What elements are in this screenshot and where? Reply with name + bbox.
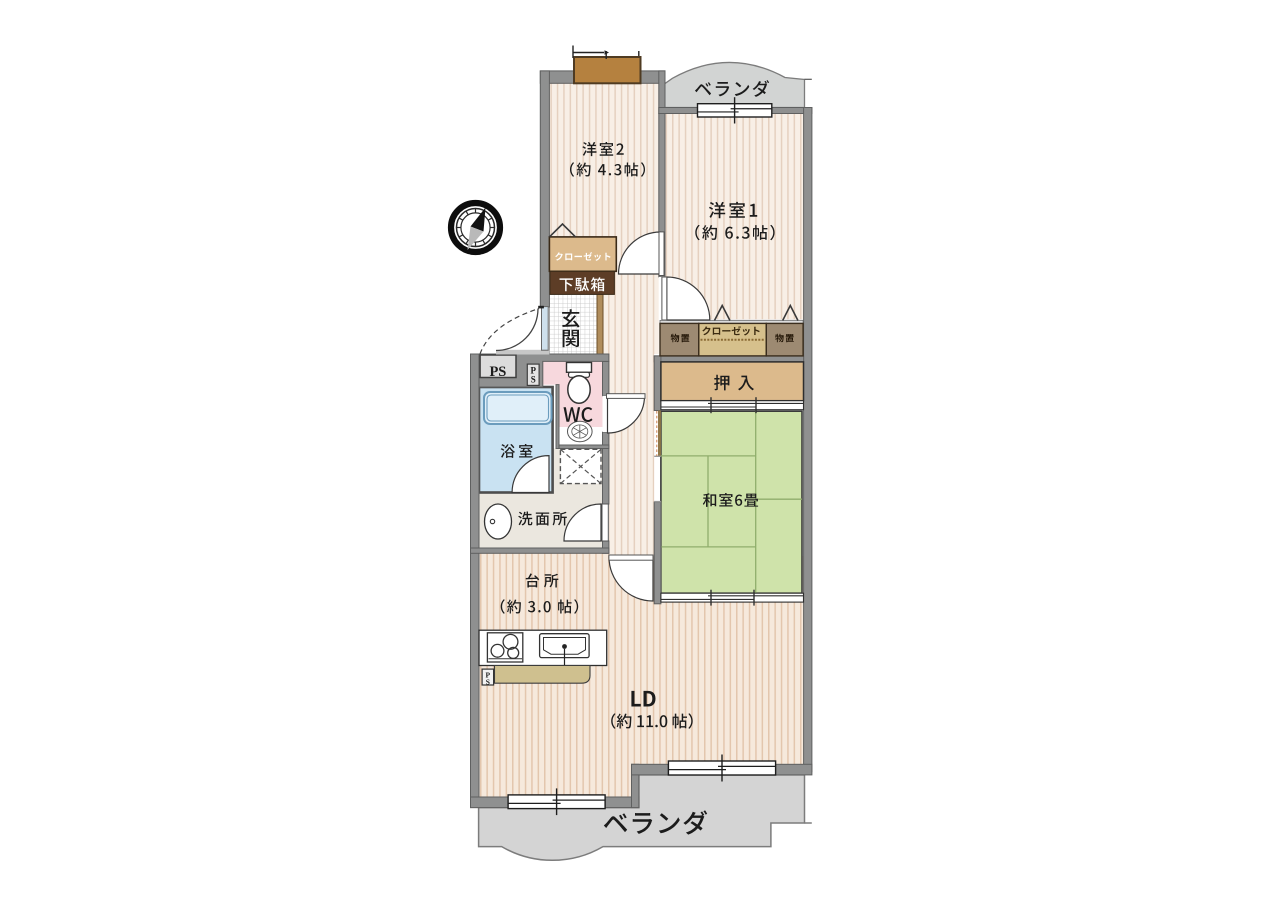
svg-text:S: S <box>486 678 490 687</box>
svg-text:S: S <box>531 375 536 385</box>
svg-text:PS: PS <box>489 364 506 380</box>
